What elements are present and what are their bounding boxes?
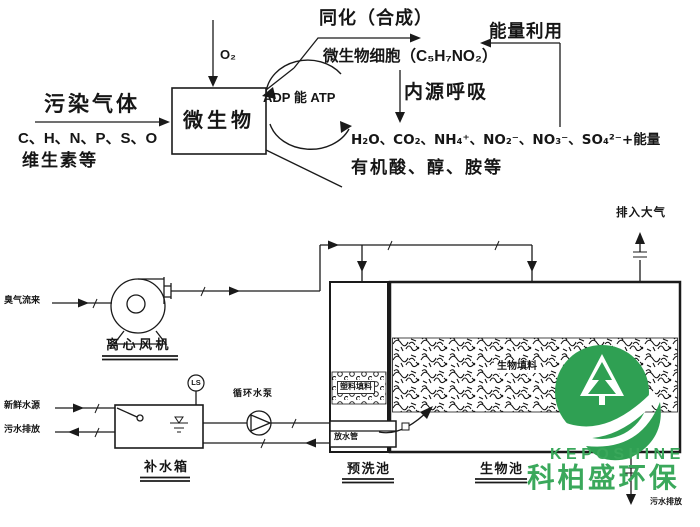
logo-chinese-text: 科柏盛环保 <box>527 463 680 493</box>
to-atmosphere-label: 排入大气 <box>616 207 666 220</box>
process-diagram: 污染气体 C、H、N、P、S、O 维生素等 微生物 O₂ ADP 能 ATP 同… <box>0 0 700 527</box>
elements-label: C、H、N、P、S、O <box>18 131 157 148</box>
level-switch-label: LS <box>189 379 203 387</box>
drain-pipe-label: 放水管 <box>334 433 358 442</box>
bio-packing-label: 生物填料 <box>494 360 540 373</box>
microbe-box-label: 微生物 <box>172 88 266 154</box>
pollutant-gas-label: 污染气体 <box>44 93 140 116</box>
endogenous-respiration-label: 内源呼吸 <box>404 83 488 104</box>
plastic-packing-label: 塑料填料 <box>337 381 375 394</box>
waste-water-right-label: 污水排放 <box>650 498 682 507</box>
adp-atp-label: ADP 能 ATP <box>263 91 335 105</box>
prewash-pool-label: 预洗池 <box>347 462 391 476</box>
vitamins-label: 维生素等 <box>22 152 98 171</box>
fan-label: 离心风机 <box>106 338 172 352</box>
logo-latin-text: KEPOSHINE <box>550 446 685 464</box>
exhaust-valve-icon <box>633 252 647 257</box>
centrifugal-fan-icon <box>111 277 171 344</box>
water-tank-label: 补水箱 <box>144 460 189 474</box>
odor-inlet-label: 臭气流来 <box>4 296 40 306</box>
fresh-water-label: 新鲜水源 <box>4 401 40 411</box>
bio-pool-label: 生物池 <box>480 462 524 476</box>
water-tank-outline <box>115 405 203 448</box>
waste-water-left-label: 污水排放 <box>4 425 40 435</box>
energy-use-label: 能量利用 <box>489 22 563 41</box>
oxygen-label: O₂ <box>220 48 236 62</box>
products-line1-label: H₂O、CO₂、NH₄⁺、NO₂⁻、NO₃⁻、SO₄²⁻+能量 <box>351 133 660 148</box>
circulation-pump-icon <box>247 411 271 435</box>
pump-label: 循环水泵 <box>233 389 273 399</box>
products-line2-label: 有机酸、醇、胺等 <box>351 159 503 178</box>
microbial-cell-label: 微生物细胞（C₅H₇NO₂） <box>323 48 497 65</box>
assimilation-label: 同化（合成） <box>319 9 433 29</box>
adp-atp-cycle-arc-bottom <box>270 124 349 149</box>
